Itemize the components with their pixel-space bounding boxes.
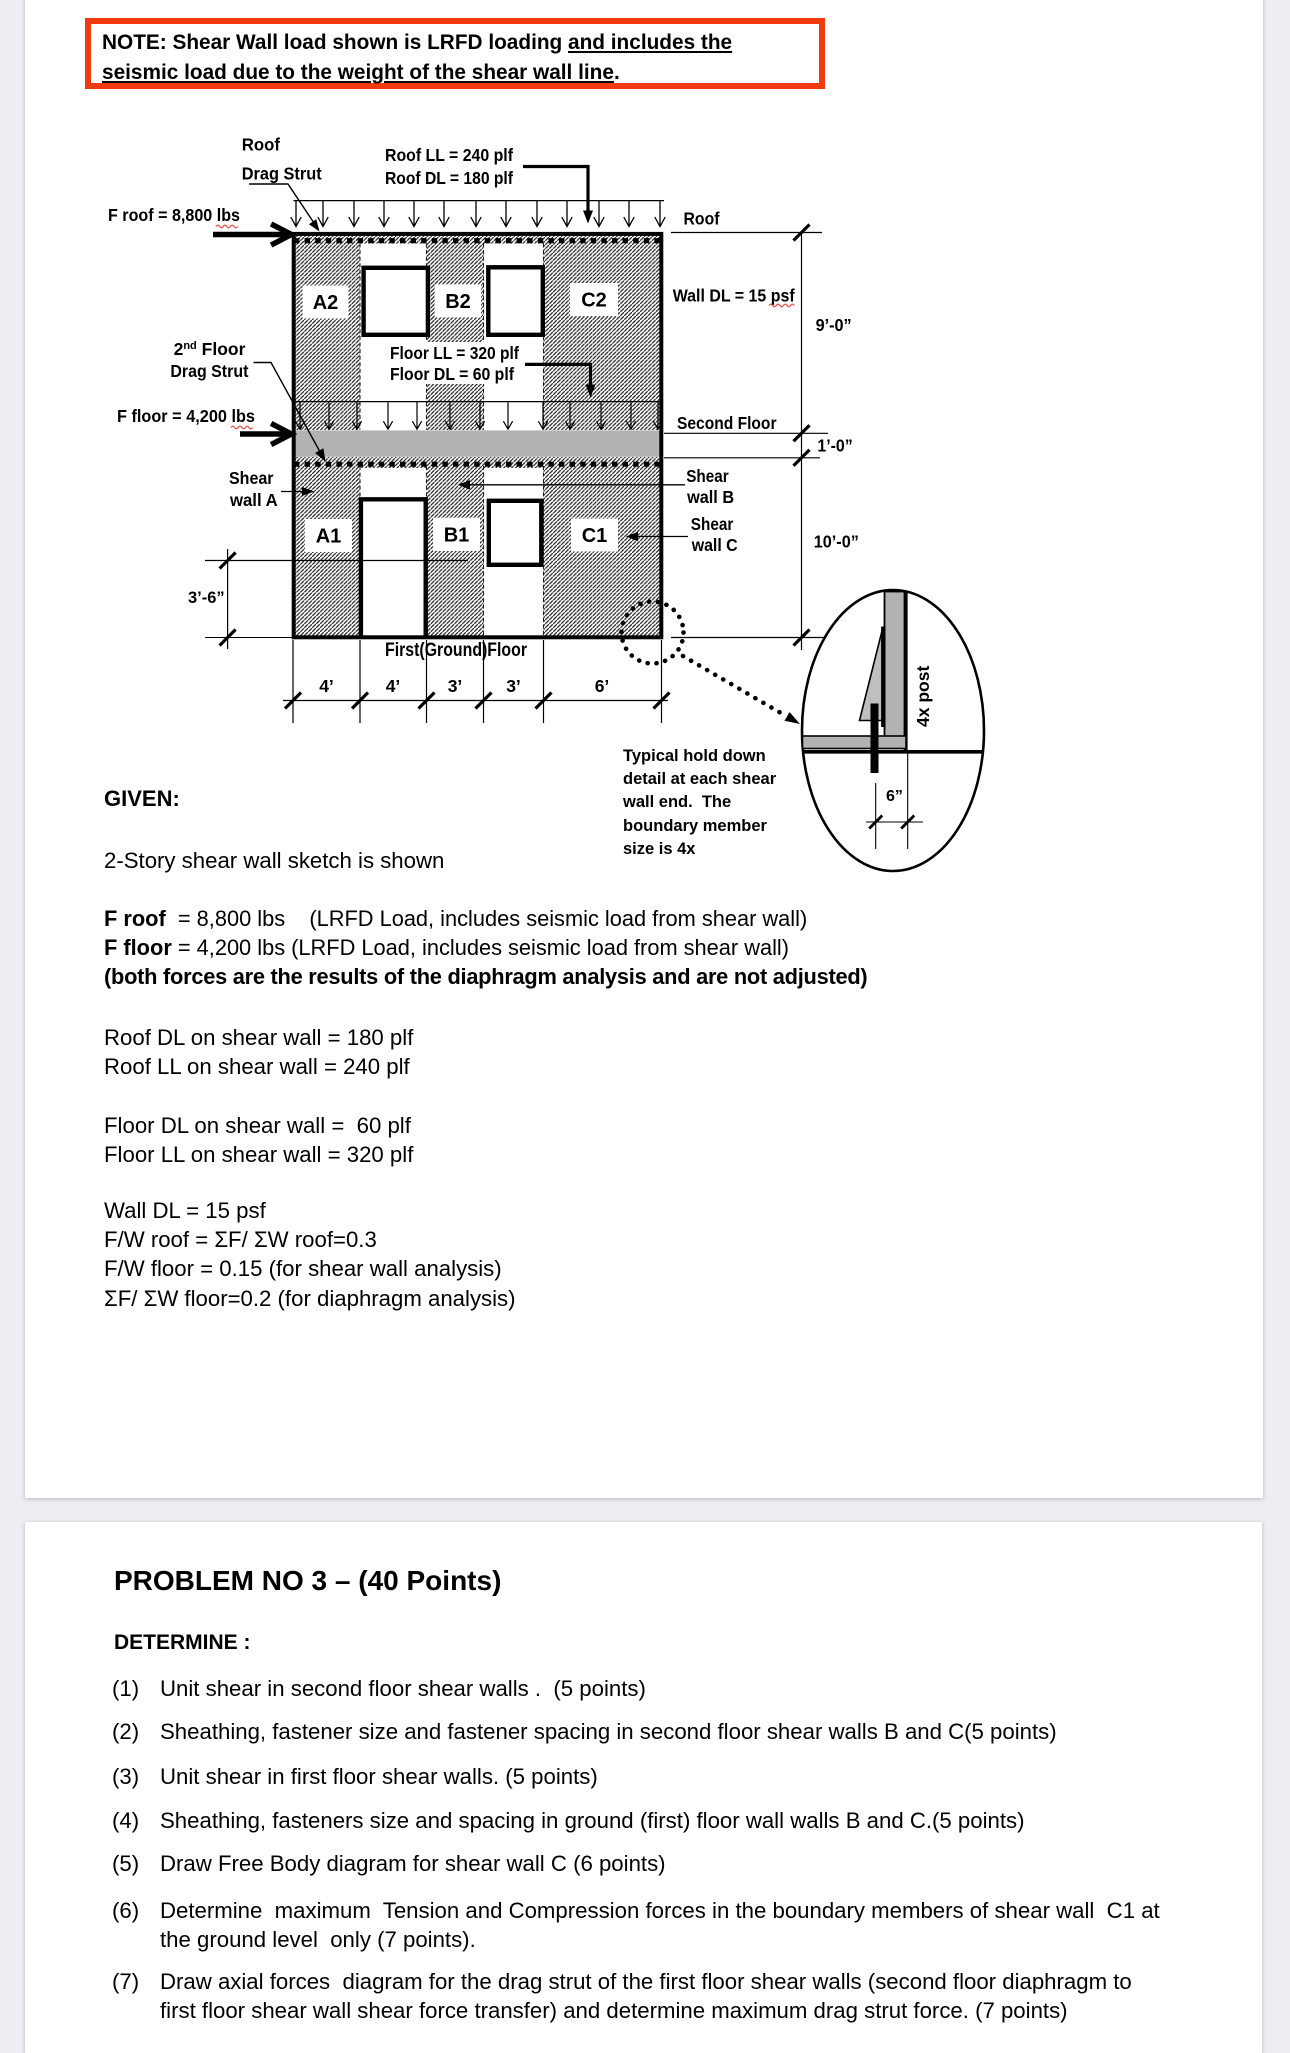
svg-text:F roof = 8,800 lbs: F roof = 8,800 lbs bbox=[108, 205, 240, 225]
svg-text:First(Ground)Floor: First(Ground)Floor bbox=[385, 640, 528, 661]
svg-text:Roof: Roof bbox=[242, 135, 280, 155]
svg-text:Wall DL = 15 psf: Wall DL = 15 psf bbox=[673, 286, 795, 306]
svg-text:1’-0”: 1’-0” bbox=[817, 436, 852, 456]
svg-text:6”: 6” bbox=[886, 788, 903, 805]
svg-text:A1: A1 bbox=[316, 526, 342, 548]
svg-text:C2: C2 bbox=[581, 290, 607, 312]
svg-text:Second Floor: Second Floor bbox=[677, 413, 777, 433]
svg-text:F floor = 4,200 lbs: F floor = 4,200 lbs bbox=[117, 406, 255, 426]
svg-text:Floor DL = 60 plf: Floor DL = 60 plf bbox=[390, 364, 514, 384]
svg-text:3’: 3’ bbox=[448, 676, 463, 696]
svg-text:3’: 3’ bbox=[506, 676, 521, 696]
svg-text:wall C: wall C bbox=[691, 535, 738, 555]
svg-text:C1: C1 bbox=[582, 525, 608, 547]
svg-text:Shear: Shear bbox=[229, 468, 274, 488]
svg-text:10’-0”: 10’-0” bbox=[814, 532, 859, 552]
svg-text:A2: A2 bbox=[313, 292, 339, 314]
svg-text:Shear: Shear bbox=[691, 514, 734, 534]
svg-text:Shear: Shear bbox=[686, 466, 729, 486]
svg-text:Roof LL = 240 plf: Roof LL = 240 plf bbox=[385, 145, 513, 165]
svg-text:2nd Floor: 2nd Floor bbox=[174, 339, 246, 359]
svg-text:Drag Strut: Drag Strut bbox=[242, 164, 322, 184]
svg-text:4’: 4’ bbox=[386, 676, 401, 696]
svg-text:wall B: wall B bbox=[686, 487, 734, 507]
svg-text:Roof DL = 180 plf: Roof DL = 180 plf bbox=[385, 168, 513, 188]
svg-text:B2: B2 bbox=[445, 291, 471, 313]
svg-text:Floor LL = 320 plf: Floor LL = 320 plf bbox=[390, 343, 519, 363]
svg-text:4x post: 4x post bbox=[913, 666, 933, 727]
svg-text:6’: 6’ bbox=[595, 676, 610, 696]
svg-text:Drag Strut: Drag Strut bbox=[170, 361, 248, 381]
svg-text:B1: B1 bbox=[444, 525, 470, 547]
svg-text:9’-0”: 9’-0” bbox=[816, 315, 852, 335]
svg-text:4’: 4’ bbox=[319, 676, 334, 696]
svg-text:3’-6”: 3’-6” bbox=[188, 589, 225, 607]
svg-text:Roof: Roof bbox=[684, 208, 720, 228]
svg-text:wall A: wall A bbox=[229, 490, 278, 510]
